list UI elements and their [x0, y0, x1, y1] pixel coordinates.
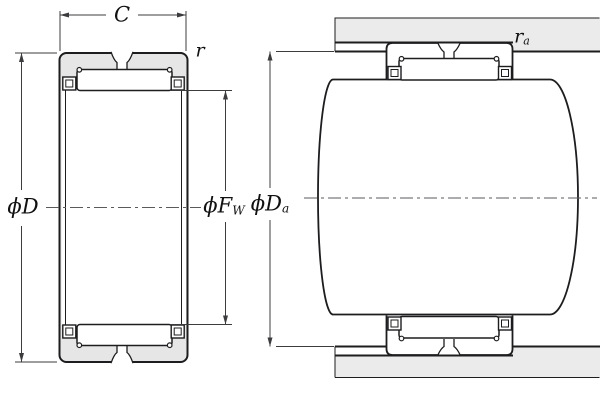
bearing-section-view	[46, 52, 201, 363]
roller-pin-mounted-bottom-left	[399, 336, 404, 341]
dim-d-main: ϕD	[7, 194, 38, 218]
mounted-bearing-top	[387, 43, 513, 80]
needle-roller-bottom	[77, 325, 172, 346]
cage-section-bottom-right	[171, 325, 184, 338]
dim-da-main: ϕD	[251, 191, 282, 215]
arrow-d-bottom	[19, 353, 24, 362]
cage-section-top-left	[63, 77, 76, 90]
cage-mounted-top-left	[388, 67, 401, 80]
dim-label-outer-diameter: ϕD	[7, 196, 38, 217]
drawing-canvas	[0, 0, 600, 400]
arrow-fw-top	[223, 91, 228, 100]
dim-fw-main: ϕF	[203, 193, 232, 217]
cage-section-bottom-left	[63, 325, 76, 338]
roller-pin-bottom-right	[167, 343, 172, 348]
needle-roller-top	[77, 70, 172, 91]
mounted-bearing-bottom	[387, 316, 513, 356]
dim-label-raceway-diameter: ϕFW	[203, 195, 244, 216]
cage-mounted-bottom-right	[499, 317, 512, 330]
dim-da-sub: a	[282, 202, 289, 216]
roller-pin-top-left	[77, 68, 82, 73]
cage-section-top-right	[171, 77, 184, 90]
housing-shoulder-bottom-left	[335, 348, 387, 356]
roller-pin-mounted-top-left	[399, 57, 404, 62]
housing-shoulder-top-left	[335, 44, 387, 52]
needle-roller-mounted-bottom	[399, 317, 499, 339]
roller-pin-mounted-bottom-right	[494, 336, 499, 341]
cage-mounted-bottom-left	[388, 317, 401, 330]
roller-pin-bottom-left	[77, 343, 82, 348]
cage-mounted-top-right	[499, 67, 512, 80]
arrow-c-right	[177, 13, 186, 18]
dim-ra-sub: a	[523, 34, 530, 47]
dim-label-width-c: C	[114, 4, 130, 25]
shaft	[318, 80, 578, 315]
arrow-da-top	[268, 52, 273, 61]
roller-pin-top-right	[167, 68, 172, 73]
dim-label-abutment-diameter: ϕDa	[251, 193, 289, 214]
arrow-c-left	[60, 13, 69, 18]
arrow-da-bottom	[268, 338, 273, 347]
dim-r-main: r	[195, 40, 204, 62]
needle-roller-mounted-top	[399, 59, 499, 81]
roller-pin-mounted-top-right	[494, 57, 499, 62]
arrow-d-top	[19, 53, 24, 62]
dim-c-main: C	[114, 2, 130, 26]
arrow-fw-bottom	[223, 316, 228, 325]
mounting-view	[304, 18, 600, 378]
dim-label-chamfer-r: r	[195, 42, 204, 61]
dim-fw-sub: W	[232, 204, 245, 218]
dim-label-shoulder-fillet-ra: ra	[514, 28, 530, 47]
dim-ra-main: r	[514, 26, 523, 48]
bearing-drawing-figure: C r ϕD ϕFW ϕDa ra const data = JSON.pars…	[0, 0, 600, 400]
